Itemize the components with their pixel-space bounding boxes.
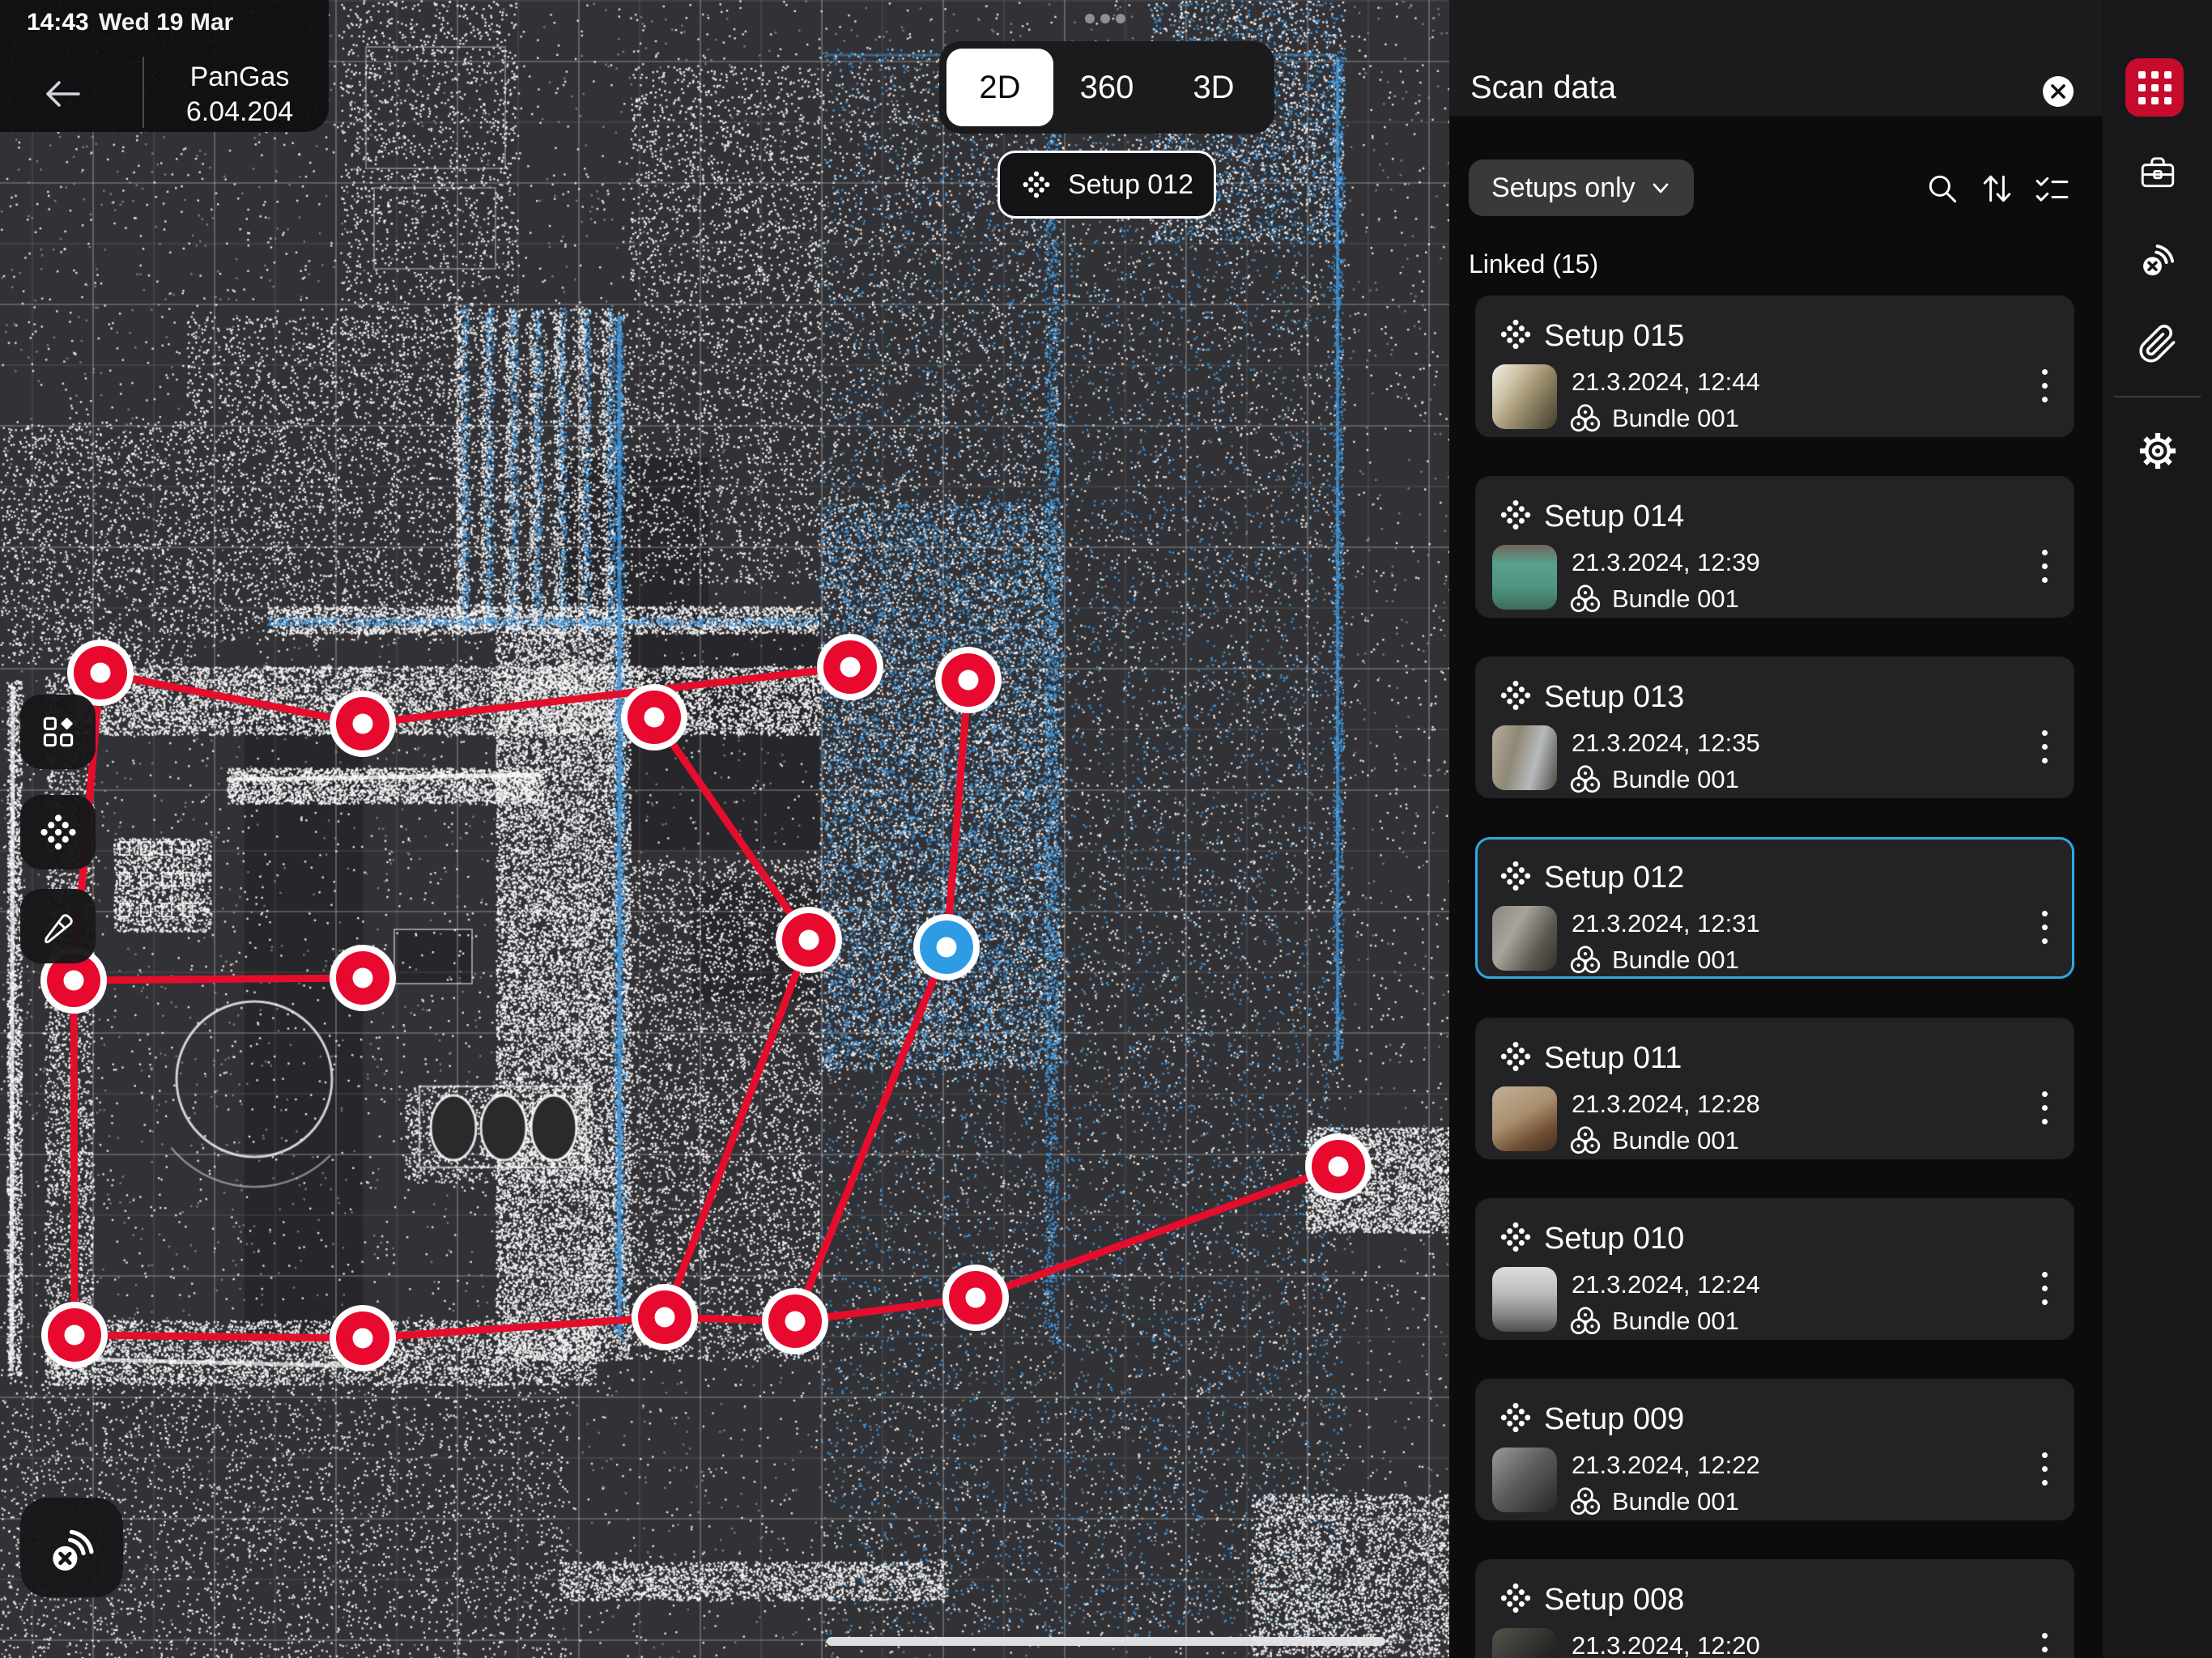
setup-card[interactable]: Setup 013 21.3.2024, 12:35 Bundle 001 — [1475, 657, 2074, 798]
paperclip-icon[interactable] — [2138, 324, 2178, 364]
setup-card[interactable]: Setup 008 21.3.2024, 12:20 Bundle 001 — [1475, 1559, 2074, 1658]
toolbox-icon[interactable] — [2138, 152, 2178, 193]
cut-tool-button[interactable] — [20, 889, 96, 963]
active-setup-pill[interactable]: Setup 012 — [998, 151, 1216, 219]
bundle-icon — [1568, 402, 1602, 436]
setup-station-icon — [1499, 1581, 1533, 1615]
right-toolbar — [2103, 0, 2212, 1658]
setup-card[interactable]: Setup 012 21.3.2024, 12:31 Bundle 001 — [1475, 837, 2074, 979]
setup-station-icon — [1021, 169, 1052, 200]
setup-bundle: Bundle 001 — [1612, 404, 1739, 433]
scan-data-panel: Scan data Setups only Linked (15) — [1449, 0, 2103, 1658]
bundle-icon — [1568, 943, 1602, 977]
setup-marker[interactable] — [330, 691, 396, 757]
setup-datetime: 21.3.2024, 12:35 — [1572, 729, 1760, 758]
setup-marker[interactable] — [41, 1302, 108, 1368]
connection-lost-button[interactable] — [20, 1498, 123, 1597]
kebab-menu-icon[interactable] — [2042, 550, 2048, 583]
bundle-row: Bundle 001 — [1568, 1485, 1739, 1519]
traverse-link — [665, 940, 809, 1317]
setup-card[interactable]: Setup 009 21.3.2024, 12:22 Bundle 001 — [1475, 1379, 2074, 1520]
bundle-row: Bundle 001 — [1568, 1304, 1739, 1338]
setup-thumbnail[interactable] — [1492, 1267, 1557, 1332]
bundle-icon — [1568, 582, 1602, 616]
kebab-menu-icon[interactable] — [2042, 1272, 2048, 1305]
traverse-link — [100, 673, 363, 724]
chevron-down-icon — [1650, 177, 1671, 198]
setup-bundle: Bundle 001 — [1612, 765, 1739, 794]
close-panel-button[interactable] — [2043, 76, 2074, 107]
setup-name: Setup 009 — [1544, 1402, 1684, 1437]
app-name: PanGas — [159, 60, 321, 95]
bundle-row: Bundle 001 — [1568, 763, 1739, 797]
app-version: 6.04.204 — [159, 95, 321, 130]
view-mode-toggle: 2D 360 3D — [939, 41, 1274, 134]
traverse-link — [946, 680, 968, 947]
setup-name: Setup 014 — [1544, 500, 1684, 534]
setup-bundle: Bundle 001 — [1612, 1126, 1739, 1155]
back-button[interactable] — [32, 70, 94, 118]
filter-label: Setups only — [1491, 172, 1636, 204]
setup-thumbnail[interactable] — [1492, 364, 1557, 429]
kebab-menu-icon[interactable] — [2042, 730, 2048, 763]
setup-thumbnail[interactable] — [1492, 1086, 1557, 1151]
setup-datetime: 21.3.2024, 12:39 — [1572, 548, 1760, 577]
setup-station-icon — [38, 812, 79, 852]
setup-marker[interactable] — [330, 1305, 396, 1371]
setup-thumbnail[interactable] — [1492, 1448, 1557, 1512]
setup-bundle: Bundle 001 — [1612, 1307, 1739, 1336]
bundle-icon — [1568, 1124, 1602, 1158]
setup-name: Setup 011 — [1544, 1041, 1682, 1076]
setup-station-icon — [1499, 859, 1533, 893]
panel-header: Scan data — [1449, 0, 2103, 116]
setup-marker[interactable] — [935, 647, 1002, 713]
setup-bundle: Bundle 001 — [1612, 585, 1739, 614]
traverse-link — [976, 1167, 1338, 1298]
traverse-link — [74, 978, 363, 980]
traverse-link — [795, 947, 946, 1321]
active-setup-label: Setup 012 — [1068, 169, 1193, 201]
sort-icon[interactable] — [1980, 172, 2014, 206]
setup-list: Setup 015 21.3.2024, 12:44 Bundle 001 Se… — [1475, 295, 2074, 1658]
panel-title: Scan data — [1470, 70, 1616, 106]
connection-lost-icon — [45, 1521, 99, 1575]
setup-bundle: Bundle 001 — [1612, 1487, 1739, 1516]
kebab-menu-icon[interactable] — [2042, 369, 2048, 402]
setup-name: Setup 012 — [1544, 861, 1684, 895]
section-label: Linked (15) — [1469, 249, 1598, 279]
traverse-link — [654, 717, 809, 940]
app-root: 14:43 Wed 19 Mar PanGas 6.04.204 26% 2D … — [0, 0, 2212, 1658]
setup-name: Setup 013 — [1544, 680, 1684, 715]
setup-card[interactable]: Setup 014 21.3.2024, 12:39 Bundle 001 — [1475, 476, 2074, 618]
setup-station-icon — [1499, 1220, 1533, 1254]
checklist-icon[interactable] — [2035, 172, 2069, 206]
toggle-3d[interactable]: 3D — [1160, 49, 1267, 126]
setup-card[interactable]: Setup 010 21.3.2024, 12:24 Bundle 001 — [1475, 1198, 2074, 1340]
setup-marker[interactable] — [632, 1284, 698, 1350]
home-indicator-bar[interactable] — [827, 1637, 1385, 1646]
apps-grid-icon — [2138, 71, 2172, 104]
kebab-menu-icon[interactable] — [2042, 911, 2048, 944]
connection-lost-icon[interactable] — [2138, 238, 2178, 278]
bundle-row: Bundle 001 — [1568, 943, 1739, 977]
project-identity: PanGas 6.04.204 — [159, 60, 321, 130]
setup-card[interactable]: Setup 011 21.3.2024, 12:28 Bundle 001 — [1475, 1018, 2074, 1159]
status-date: Wed 19 Mar — [99, 9, 233, 36]
status-time: 14:43 — [27, 9, 89, 36]
setup-marker[interactable] — [942, 1265, 1009, 1331]
setup-thumbnail[interactable] — [1492, 1628, 1557, 1658]
setup-tool-button[interactable] — [20, 795, 96, 869]
setup-datetime: 21.3.2024, 12:24 — [1572, 1270, 1760, 1299]
setup-marker[interactable] — [776, 907, 842, 973]
setup-station-icon — [1499, 1039, 1533, 1073]
setup-thumbnail[interactable] — [1492, 906, 1557, 971]
setup-datetime: 21.3.2024, 12:20 — [1572, 1631, 1760, 1658]
setup-marker[interactable] — [330, 945, 396, 1011]
setup-marker[interactable] — [762, 1288, 828, 1354]
bundle-icon — [1568, 1485, 1602, 1519]
current-setup-marker[interactable] — [913, 914, 980, 980]
top-left-block: 14:43 Wed 19 Mar PanGas 6.04.204 — [0, 0, 329, 132]
targets-button[interactable] — [20, 695, 96, 769]
setup-name: Setup 008 — [1544, 1583, 1684, 1618]
setup-station-icon — [1499, 498, 1533, 532]
multitask-dots-icon[interactable] — [1085, 14, 1125, 23]
settings-gear-icon[interactable] — [2138, 431, 2178, 471]
setup-marker[interactable] — [621, 684, 687, 750]
scalpel-icon — [38, 906, 79, 946]
setup-thumbnail[interactable] — [1492, 545, 1557, 610]
setup-thumbnail[interactable] — [1492, 725, 1557, 790]
setup-datetime: 21.3.2024, 12:44 — [1572, 368, 1760, 397]
traverse-link — [363, 1317, 665, 1338]
setup-name: Setup 015 — [1544, 319, 1684, 354]
setup-card[interactable]: Setup 015 21.3.2024, 12:44 Bundle 001 — [1475, 295, 2074, 437]
setup-station-icon — [1499, 1401, 1533, 1435]
bundle-row: Bundle 001 — [1568, 1124, 1739, 1158]
bundle-icon — [1568, 1304, 1602, 1338]
traverse-link — [74, 980, 74, 1335]
setup-datetime: 21.3.2024, 12:31 — [1572, 909, 1760, 938]
bundle-row: Bundle 001 — [1568, 402, 1739, 436]
setup-datetime: 21.3.2024, 12:28 — [1572, 1090, 1760, 1119]
bundle-icon — [1568, 763, 1602, 797]
arrow-left-icon — [43, 76, 83, 112]
search-icon[interactable] — [1925, 172, 1959, 206]
setup-station-icon — [1499, 678, 1533, 712]
divider — [2114, 396, 2201, 397]
apps-button[interactable] — [2125, 58, 2184, 117]
setup-marker[interactable] — [1305, 1133, 1372, 1200]
traverse-link — [363, 667, 850, 724]
traverse-link — [74, 1335, 363, 1338]
toggle-360[interactable]: 360 — [1053, 49, 1160, 126]
setup-datetime: 21.3.2024, 12:22 — [1572, 1451, 1760, 1480]
bundle-row: Bundle 001 — [1568, 582, 1739, 616]
divider — [143, 57, 144, 128]
toggle-2d[interactable]: 2D — [946, 49, 1053, 126]
filter-dropdown[interactable]: Setups only — [1469, 159, 1694, 216]
setup-bundle: Bundle 001 — [1612, 946, 1739, 975]
kebab-menu-icon[interactable] — [2042, 1452, 2048, 1486]
setup-station-icon — [1499, 317, 1533, 351]
close-icon — [2049, 83, 2067, 100]
kebab-menu-icon[interactable] — [2042, 1091, 2048, 1124]
targets-icon — [38, 712, 79, 752]
setup-name: Setup 010 — [1544, 1222, 1684, 1256]
kebab-menu-icon[interactable] — [2042, 1633, 2048, 1658]
setup-marker[interactable] — [817, 634, 883, 700]
